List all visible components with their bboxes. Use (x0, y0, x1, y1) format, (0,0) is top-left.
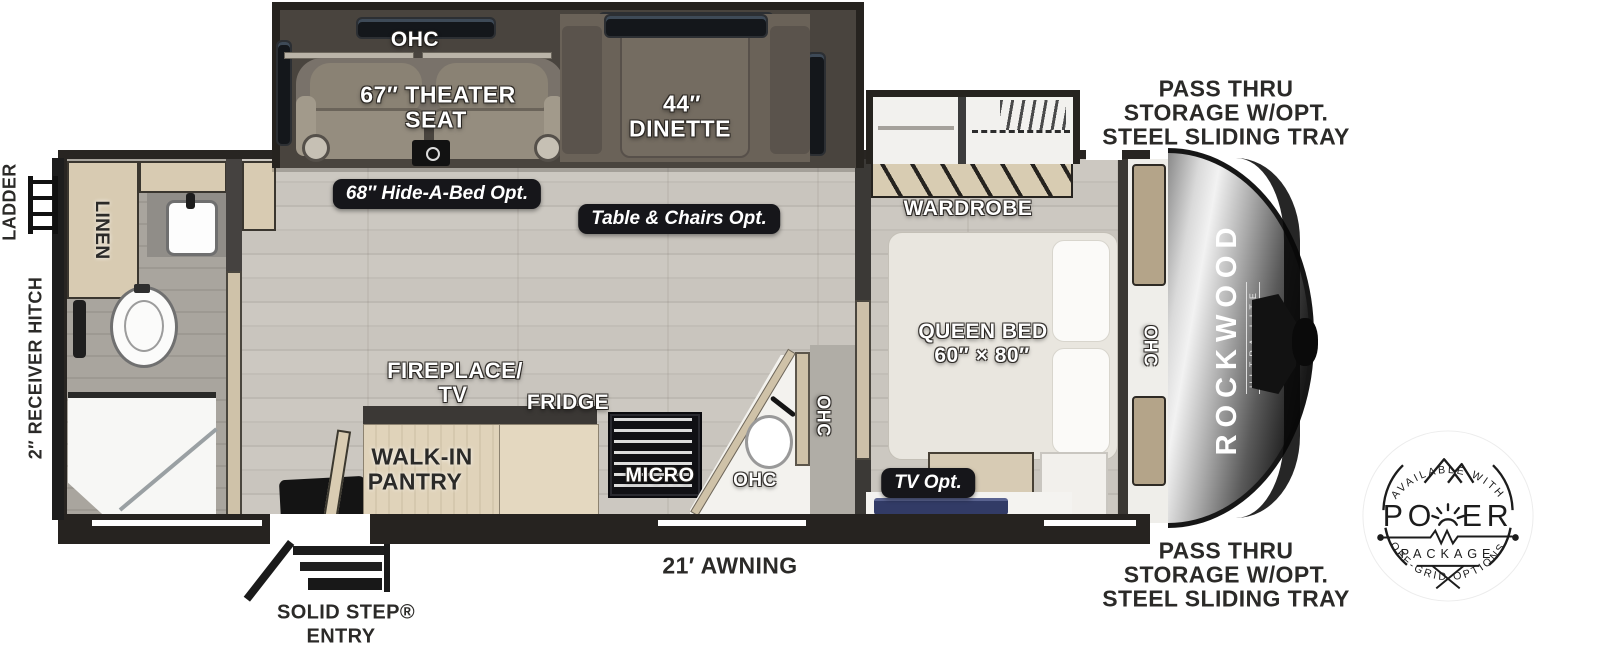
dinette-label-2: DINETTE (629, 116, 731, 143)
hide-a-bed-pill: 68″ Hide-A-Bed Opt. (333, 179, 541, 209)
brand-name: ROCKWOOD (1211, 221, 1244, 456)
pass-thru-bottom-2: STORAGE W/OPT. (1124, 562, 1329, 589)
fireplace-label-2: TV (438, 382, 467, 408)
table-chairs-pill: Table & Chairs Opt. (578, 204, 780, 234)
badge-power-left: PO (1383, 500, 1437, 533)
ohc-slide-label: OHC (391, 28, 439, 52)
pass-thru-top-3: STEEL SLIDING TRAY (1102, 124, 1349, 151)
bedroom-wall-upper (855, 159, 871, 300)
pantry-label-2: PANTRY (368, 469, 462, 496)
ohc-side-cabinet (795, 352, 810, 466)
pass-thru-top-2: STORAGE W/OPT. (1124, 100, 1329, 127)
receiver-hitch-label: 2″ RECEIVER HITCH (26, 277, 47, 459)
linen-label: LINEN (90, 201, 112, 260)
wardrobe-shelf-line (878, 126, 954, 130)
entry-label-1: SOLID STEP® (277, 602, 415, 625)
entry-label-2: ENTRY (306, 626, 375, 645)
kitchen-sink (745, 415, 793, 469)
shower (68, 392, 216, 518)
awning-rail-1 (92, 520, 262, 526)
power-package-badge: PO ER PACKAGE (1360, 428, 1536, 604)
wardrobe-rod-dashes (972, 130, 1070, 133)
front-bedroom-wall (1118, 159, 1128, 523)
ohc-side-label: OHC (813, 395, 834, 437)
micro-label: MICRO (625, 465, 694, 488)
tv-option-pill: TV Opt. (881, 468, 975, 498)
hitch-coupler (1292, 318, 1318, 366)
cupholder-left-icon (302, 134, 330, 162)
entry-steps (280, 540, 400, 600)
toilet-hinge (134, 284, 150, 293)
hanging-clothes-icon (1000, 100, 1066, 130)
pantry-label-1: WALK-IN (371, 444, 472, 471)
hall-cabinet (242, 161, 276, 231)
pass-thru-bottom-1: PASS THRU (1159, 538, 1294, 565)
wardrobe-label: WARDROBE (904, 197, 1033, 221)
console-dot-icon (426, 147, 440, 161)
tv-flat-icon (874, 498, 1008, 515)
ohc-front-label: OHC (1140, 325, 1161, 367)
wardrobe-divider (958, 97, 966, 164)
storage-hatch-upper (1132, 164, 1166, 286)
pass-thru-top-1: PASS THRU (1159, 76, 1294, 103)
fireplace-label-1: FIREPLACE/ (387, 358, 523, 384)
top-wall-window-gap (1086, 150, 1122, 160)
theater-label-1: 67″ THEATER (360, 82, 515, 109)
bath-top-cabinet (139, 161, 227, 193)
theater-label-2: SEAT (405, 107, 467, 134)
toilet-seat-ring (124, 300, 164, 352)
dinette-label-1: 44″ (663, 91, 701, 118)
dinette-bench-right (770, 26, 810, 154)
cupholder-right-icon (534, 134, 562, 162)
ohc-lower-label: OHC (733, 470, 777, 492)
dinette-window-inner (604, 14, 768, 38)
bed-label-2: 60″ × 80″ (934, 344, 1029, 368)
towel-bar (73, 300, 86, 358)
pillow-top (1052, 240, 1110, 342)
floorplan-canvas: LINEN FIREPLACE/ TV FRIDGE WALK-IN PANTR… (0, 0, 1600, 645)
awning-label: 21′ AWNING (662, 553, 797, 580)
wardrobe-base-cabinet (871, 160, 1073, 198)
awning-rail-2 (658, 520, 806, 526)
pillow-bottom (1052, 348, 1110, 454)
ladder-icon (28, 176, 58, 236)
bath-faucet-icon (186, 193, 195, 209)
storage-hatch-lower (1132, 396, 1166, 486)
dinette-bench-left (562, 26, 602, 154)
ladder-label: LADDER (0, 163, 21, 240)
bottom-wall (58, 514, 1150, 544)
bedroom-window-gap (1044, 520, 1136, 526)
bedroom-wall-door (855, 300, 871, 460)
badge-package: PACKAGE (1401, 546, 1496, 561)
badge-power-right: ER (1462, 500, 1514, 533)
fridge-block (499, 424, 599, 525)
pass-thru-bottom-3: STEEL SLIDING TRAY (1102, 586, 1349, 613)
bathroom-wall-upper (226, 159, 242, 271)
fridge-label: FRIDGE (527, 391, 609, 415)
bathroom-wall-lower (226, 271, 242, 523)
bed-label-1: QUEEN BED (918, 320, 1047, 344)
